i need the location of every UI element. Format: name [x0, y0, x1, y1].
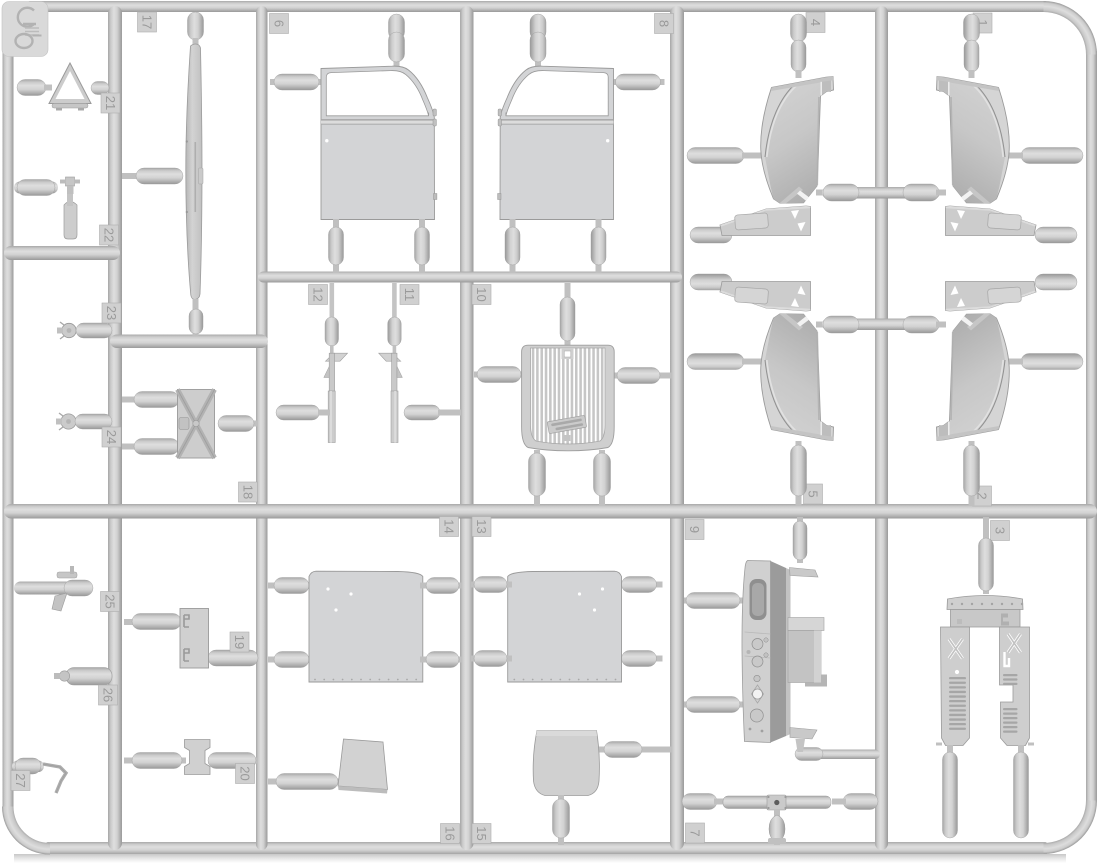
svg-text:16: 16: [443, 826, 458, 840]
svg-text:18: 18: [241, 485, 256, 499]
svg-text:21: 21: [103, 96, 118, 110]
svg-text:4: 4: [808, 19, 823, 26]
svg-text:14: 14: [442, 519, 457, 533]
svg-text:8: 8: [657, 20, 672, 27]
svg-text:24: 24: [104, 430, 119, 444]
svg-text:3: 3: [993, 527, 1008, 534]
svg-text:26: 26: [101, 688, 116, 702]
svg-text:23: 23: [104, 306, 119, 320]
svg-text:13: 13: [474, 519, 489, 533]
svg-text:11: 11: [402, 288, 417, 302]
svg-text:7: 7: [688, 829, 703, 836]
svg-text:5: 5: [806, 490, 821, 497]
svg-text:9: 9: [687, 526, 702, 533]
svg-text:20: 20: [238, 766, 253, 780]
svg-text:25: 25: [103, 594, 118, 608]
svg-text:27: 27: [13, 773, 28, 787]
svg-text:19: 19: [232, 635, 247, 649]
svg-text:22: 22: [102, 228, 117, 242]
svg-text:17: 17: [140, 15, 155, 29]
svg-text:6: 6: [272, 20, 287, 27]
svg-text:15: 15: [474, 826, 489, 840]
svg-text:12: 12: [311, 287, 326, 301]
svg-text:10: 10: [474, 287, 489, 301]
